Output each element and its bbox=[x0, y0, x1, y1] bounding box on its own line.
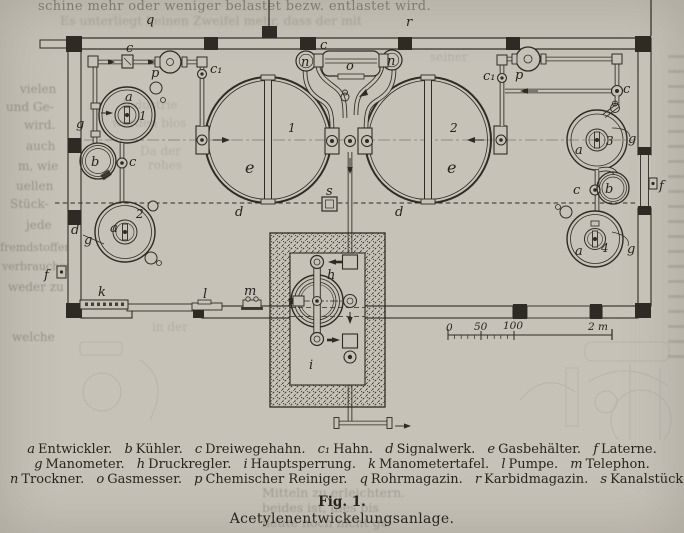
label-c: c bbox=[320, 38, 328, 53]
lantern-left bbox=[57, 266, 66, 278]
canal-piece bbox=[322, 197, 337, 211]
regulator-pit bbox=[270, 233, 411, 429]
legend-value: Hauptsperrung. bbox=[251, 457, 356, 472]
label-d: d bbox=[395, 205, 403, 220]
legend-item: oGasmesser. bbox=[96, 472, 182, 487]
label-n: n bbox=[301, 55, 309, 70]
legend-key: g bbox=[34, 457, 42, 472]
label-i: i bbox=[309, 358, 313, 373]
label-e: e bbox=[447, 158, 456, 177]
legend-value: Dreiwegehahn. bbox=[205, 442, 305, 457]
label-a: a bbox=[575, 143, 583, 158]
legend-item: qRohrmagazin. bbox=[360, 472, 463, 487]
label-g: g bbox=[627, 242, 635, 257]
legend-item: rKarbidmagazin. bbox=[475, 472, 588, 487]
label-d: d bbox=[71, 223, 79, 238]
legend-value: Rohrmagazin. bbox=[371, 472, 463, 487]
legend-line-3: nTrockner. oGasmesser. pChemischer Reini… bbox=[6, 472, 678, 487]
legend-item: lPumpe. bbox=[501, 457, 558, 472]
scale-100: 100 bbox=[503, 320, 523, 332]
legend-key: s bbox=[600, 472, 607, 487]
label-4: 4 bbox=[600, 241, 609, 255]
label-s: s bbox=[326, 184, 333, 199]
legend-item: sKanalstück. bbox=[600, 472, 684, 487]
legend-value: Kühler. bbox=[136, 442, 183, 457]
label-k: k bbox=[98, 285, 106, 300]
label-b: b bbox=[91, 155, 99, 170]
legend-value: Gasmesser. bbox=[107, 472, 182, 487]
legend-line-1: aEntwickler. bKühler. cDreiwegehahn. c₁H… bbox=[6, 442, 678, 457]
legend-item: pChemischer Reiniger. bbox=[194, 472, 347, 487]
legend-value: Pumpe. bbox=[509, 457, 559, 472]
label-c: c bbox=[129, 155, 137, 170]
label-2: 2 bbox=[135, 207, 144, 221]
legend-key: o bbox=[96, 472, 104, 487]
label-p: p bbox=[515, 68, 524, 83]
label-f: f bbox=[43, 268, 51, 283]
label-a: a bbox=[110, 221, 118, 236]
label-l: l bbox=[203, 287, 207, 302]
legend-key: p bbox=[194, 472, 202, 487]
label-3: 3 bbox=[606, 134, 614, 148]
label-c: c bbox=[126, 41, 134, 56]
plant-plan-drawing: q r c c₁ p g a 1 b c 2 a d g f k l m 1 e… bbox=[0, 0, 684, 440]
scale-2m: 2 m bbox=[587, 321, 608, 333]
legend-value: Hahn. bbox=[333, 442, 373, 457]
legend-item: hDruckregler. bbox=[137, 457, 232, 472]
label-c1: c₁ bbox=[210, 62, 223, 77]
legend-key: r bbox=[475, 472, 481, 487]
label-m: m bbox=[244, 284, 256, 299]
label-h: h bbox=[327, 268, 335, 283]
legend-line-2: gManometer. hDruckregler. iHauptsperrung… bbox=[6, 457, 678, 472]
legend-item: aEntwickler. bbox=[27, 442, 112, 457]
label-e: e bbox=[245, 158, 254, 177]
scale-50: 50 bbox=[474, 321, 488, 333]
legend-item: cDreiwegehahn. bbox=[195, 442, 306, 457]
legend-key: b bbox=[124, 442, 132, 457]
legend-value: Laterne. bbox=[601, 442, 657, 457]
label-2: 2 bbox=[449, 121, 458, 135]
legend-item: kManometertafel. bbox=[368, 457, 489, 472]
legend-key: k bbox=[368, 457, 376, 472]
label-c: c bbox=[623, 82, 631, 97]
legend-key: l bbox=[501, 457, 505, 472]
legend-key: d bbox=[385, 442, 393, 457]
legend-item: dSignalwerk. bbox=[385, 442, 475, 457]
generator-2 bbox=[83, 201, 162, 266]
legend-item: fLaterne. bbox=[593, 442, 657, 457]
label-1: 1 bbox=[288, 121, 296, 135]
legend-key: n bbox=[10, 472, 18, 487]
label-r: r bbox=[406, 15, 413, 30]
label-g: g bbox=[628, 132, 636, 147]
legend-item: mTelephon. bbox=[570, 457, 650, 472]
label-g: g bbox=[84, 233, 92, 248]
legend-value: Manometer. bbox=[46, 457, 125, 472]
legend-item: eGasbehälter. bbox=[487, 442, 581, 457]
label-f: f bbox=[658, 179, 666, 194]
purifier-left bbox=[159, 51, 181, 73]
legend-value: Trockner. bbox=[21, 472, 84, 487]
legend-item: bKühler. bbox=[124, 442, 182, 457]
label-o: o bbox=[346, 59, 354, 74]
legend-item: c₁Hahn. bbox=[318, 442, 373, 457]
label-q: q bbox=[146, 13, 154, 28]
legend-item: nTrockner. bbox=[10, 472, 84, 487]
label-1: 1 bbox=[139, 109, 147, 123]
door-opening bbox=[527, 306, 590, 318]
legend-key: m bbox=[570, 457, 582, 472]
legend-value: Manometertafel. bbox=[379, 457, 489, 472]
filler-valve bbox=[150, 82, 162, 94]
generator-4 bbox=[556, 205, 629, 268]
label-c: c bbox=[573, 183, 581, 198]
label-a: a bbox=[575, 244, 583, 259]
legend-item: iHauptsperrung. bbox=[243, 457, 356, 472]
legend-value: Druckregler. bbox=[148, 457, 231, 472]
scanned-book-page: schine mehr oder weniger belastet bezw. … bbox=[0, 0, 684, 533]
legend-value: Entwickler. bbox=[38, 442, 112, 457]
label-n: n bbox=[387, 54, 395, 69]
legend-key: i bbox=[243, 457, 247, 472]
label-b: b bbox=[605, 182, 613, 197]
legend-value: Gasbehälter. bbox=[498, 442, 581, 457]
label-d: d bbox=[235, 205, 243, 220]
legend-item: gManometer. bbox=[34, 457, 124, 472]
legend-value: Chemischer Reiniger. bbox=[205, 472, 347, 487]
legend-key: e bbox=[487, 442, 495, 457]
legend-key: c₁ bbox=[318, 442, 331, 457]
scale-0: 0 bbox=[446, 322, 453, 334]
legend-key: a bbox=[27, 442, 35, 457]
legend-key: c bbox=[195, 442, 202, 457]
label-p: p bbox=[151, 66, 160, 81]
legend-key: f bbox=[593, 442, 598, 457]
outlet-tee bbox=[334, 418, 411, 429]
label-a: a bbox=[125, 90, 133, 105]
figure-caption: aEntwickler. bKühler. cDreiwegehahn. c₁H… bbox=[6, 442, 678, 527]
figure-number: Fig. 1. bbox=[6, 494, 678, 510]
legend-value: Telephon. bbox=[586, 457, 650, 472]
label-c1: c₁ bbox=[483, 69, 496, 84]
legend-key: h bbox=[137, 457, 145, 472]
label-g: g bbox=[76, 117, 84, 132]
figure-title: Acetylenentwickelungsanlage. bbox=[6, 511, 678, 527]
legend-value: Signalwerk. bbox=[397, 442, 476, 457]
door-opening bbox=[127, 304, 197, 311]
legend-value: Karbidmagazin. bbox=[484, 472, 588, 487]
manometer-panel bbox=[80, 300, 128, 309]
lantern-right bbox=[649, 178, 657, 189]
legend-key: q bbox=[360, 472, 368, 487]
legend-value: Kanalstück. bbox=[610, 472, 684, 487]
